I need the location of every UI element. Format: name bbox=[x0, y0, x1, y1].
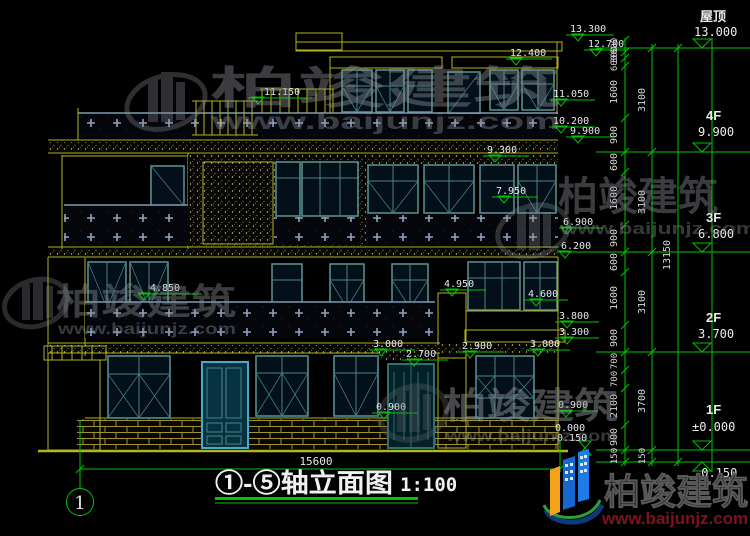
dim-floor: 3100 bbox=[637, 290, 648, 314]
dim-fine: 600 bbox=[610, 55, 620, 71]
slab-3f bbox=[48, 247, 558, 257]
floor-elev-2f: 3.700 bbox=[698, 327, 734, 341]
watermark-brand-top: 柏竣建筑 bbox=[210, 64, 560, 113]
floor-label-2f: 2F bbox=[706, 310, 721, 325]
elev-3000-right: 3.000 bbox=[530, 339, 560, 350]
dim-floor: 150 bbox=[638, 448, 648, 464]
window-1f bbox=[334, 356, 378, 416]
title-underline bbox=[215, 497, 418, 500]
elev-12400: 12.400 bbox=[510, 48, 546, 59]
window-1f bbox=[108, 356, 170, 418]
brand-logo-site: www.baijunjz.com bbox=[601, 509, 748, 528]
dim-floor: 3100 bbox=[637, 88, 648, 112]
elev-3800: 3.800 bbox=[559, 311, 589, 322]
window-2f bbox=[468, 262, 520, 310]
brand-logo-icon bbox=[544, 449, 602, 522]
window-3f bbox=[368, 165, 418, 213]
watermark-site-bottom: www.baijunjz.com bbox=[445, 428, 618, 445]
drawing-scale: 1:100 bbox=[400, 474, 457, 496]
railing-3f-mid bbox=[274, 217, 360, 245]
watermark-brand-right: 柏竣建筑 bbox=[558, 175, 718, 219]
drawing-title: ①-⑤轴立面图 bbox=[215, 468, 393, 498]
watermark-site-left: www.baijunjz.com bbox=[57, 321, 236, 338]
entry-door-double bbox=[202, 362, 248, 448]
dim-fine: 1600 bbox=[609, 286, 620, 310]
window-3f bbox=[302, 162, 358, 216]
dim-fine: 1600 bbox=[609, 80, 620, 104]
floor-label-4f: 4F bbox=[706, 108, 721, 123]
dim-fine: 150 bbox=[610, 448, 620, 464]
floor-elev-1f: ±0.000 bbox=[692, 420, 735, 434]
watermark-site-top: www.baijunjz.com bbox=[210, 108, 560, 134]
window-2f bbox=[524, 262, 557, 310]
dim-fine: 900 bbox=[609, 329, 620, 347]
elev-4950: 4.950 bbox=[444, 279, 474, 290]
brand-logo-text: 柏竣建筑 bbox=[604, 471, 748, 512]
dim-fine: 600 bbox=[609, 153, 620, 171]
dim-fine: 700 bbox=[610, 353, 620, 369]
floor-elev-roof: 13.000 bbox=[694, 25, 737, 39]
window-1f bbox=[256, 356, 308, 416]
balcony-railing-3f bbox=[64, 205, 188, 245]
watermark-site-right: www.baijunjz.com bbox=[559, 219, 750, 238]
cad-elevation-screenshot: 13.300 12.700 12.400 11.150 11.050 10.20… bbox=[0, 0, 750, 536]
window-3f bbox=[424, 165, 474, 213]
width-dim-value: 15600 bbox=[299, 455, 332, 468]
balcony-window-3f bbox=[151, 166, 184, 206]
elev-7950: 7.950 bbox=[496, 186, 526, 197]
elev-6200: 6.200 bbox=[561, 241, 591, 252]
elevation-drawing: 13.300 12.700 12.400 11.150 11.050 10.20… bbox=[0, 0, 750, 536]
dim-fine: 900 bbox=[609, 126, 620, 144]
axis-bubble-number: 1 bbox=[74, 493, 85, 514]
dim-fine: 600 bbox=[609, 253, 620, 271]
elev-2700: 2.700 bbox=[406, 349, 436, 360]
elev-9300: 9.300 bbox=[487, 145, 517, 156]
elev-13300: 13.300 bbox=[570, 24, 606, 35]
slab-4f bbox=[48, 140, 558, 153]
elev-4600: 4.600 bbox=[528, 289, 558, 300]
elev-2900: 2.900 bbox=[462, 341, 492, 352]
elev-9900-left: 9.900 bbox=[570, 126, 600, 137]
elev-3300: 3.300 bbox=[559, 327, 589, 338]
floor-elev-4f: 9.900 bbox=[698, 125, 734, 139]
elev-3000-left: 3.000 bbox=[373, 339, 403, 350]
floor-label-roof: 屋顶 bbox=[700, 9, 726, 24]
watermark-brand-bottom: 柏竣建筑 bbox=[443, 385, 618, 426]
dim-floor: 3700 bbox=[637, 389, 648, 413]
floor-label-1f: 1F bbox=[706, 402, 721, 417]
floor-3f bbox=[62, 153, 558, 250]
dimension-system: 600 300 600 1600 900 600 1600 900 600 16… bbox=[596, 9, 750, 480]
window-3f bbox=[276, 162, 300, 216]
watermark-brand-left: 柏竣建筑 bbox=[56, 281, 236, 322]
dim-total-height: 13150 bbox=[662, 240, 673, 270]
